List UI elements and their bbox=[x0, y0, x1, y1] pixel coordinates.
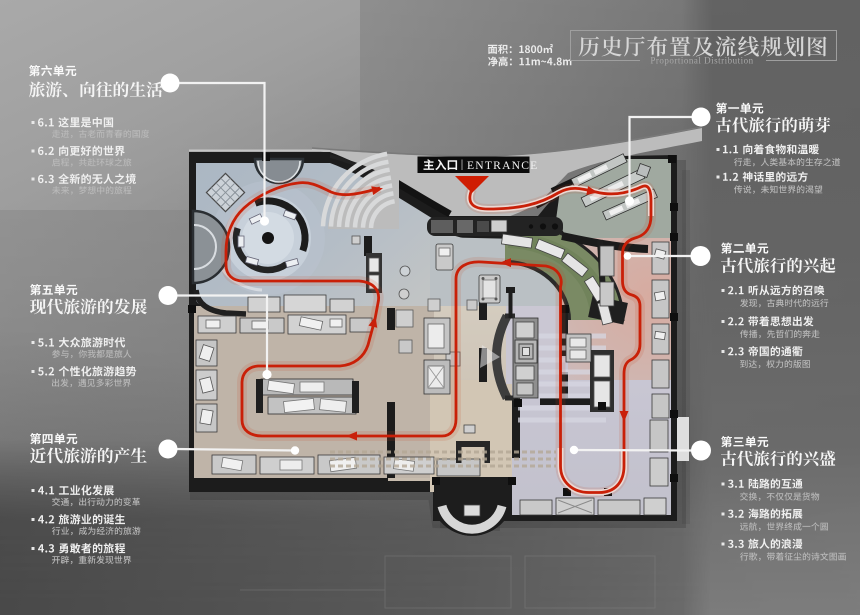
svg-text:Proportional Distribution: Proportional Distribution bbox=[650, 56, 753, 66]
svg-text:ENTRANCE: ENTRANCE bbox=[467, 159, 538, 172]
